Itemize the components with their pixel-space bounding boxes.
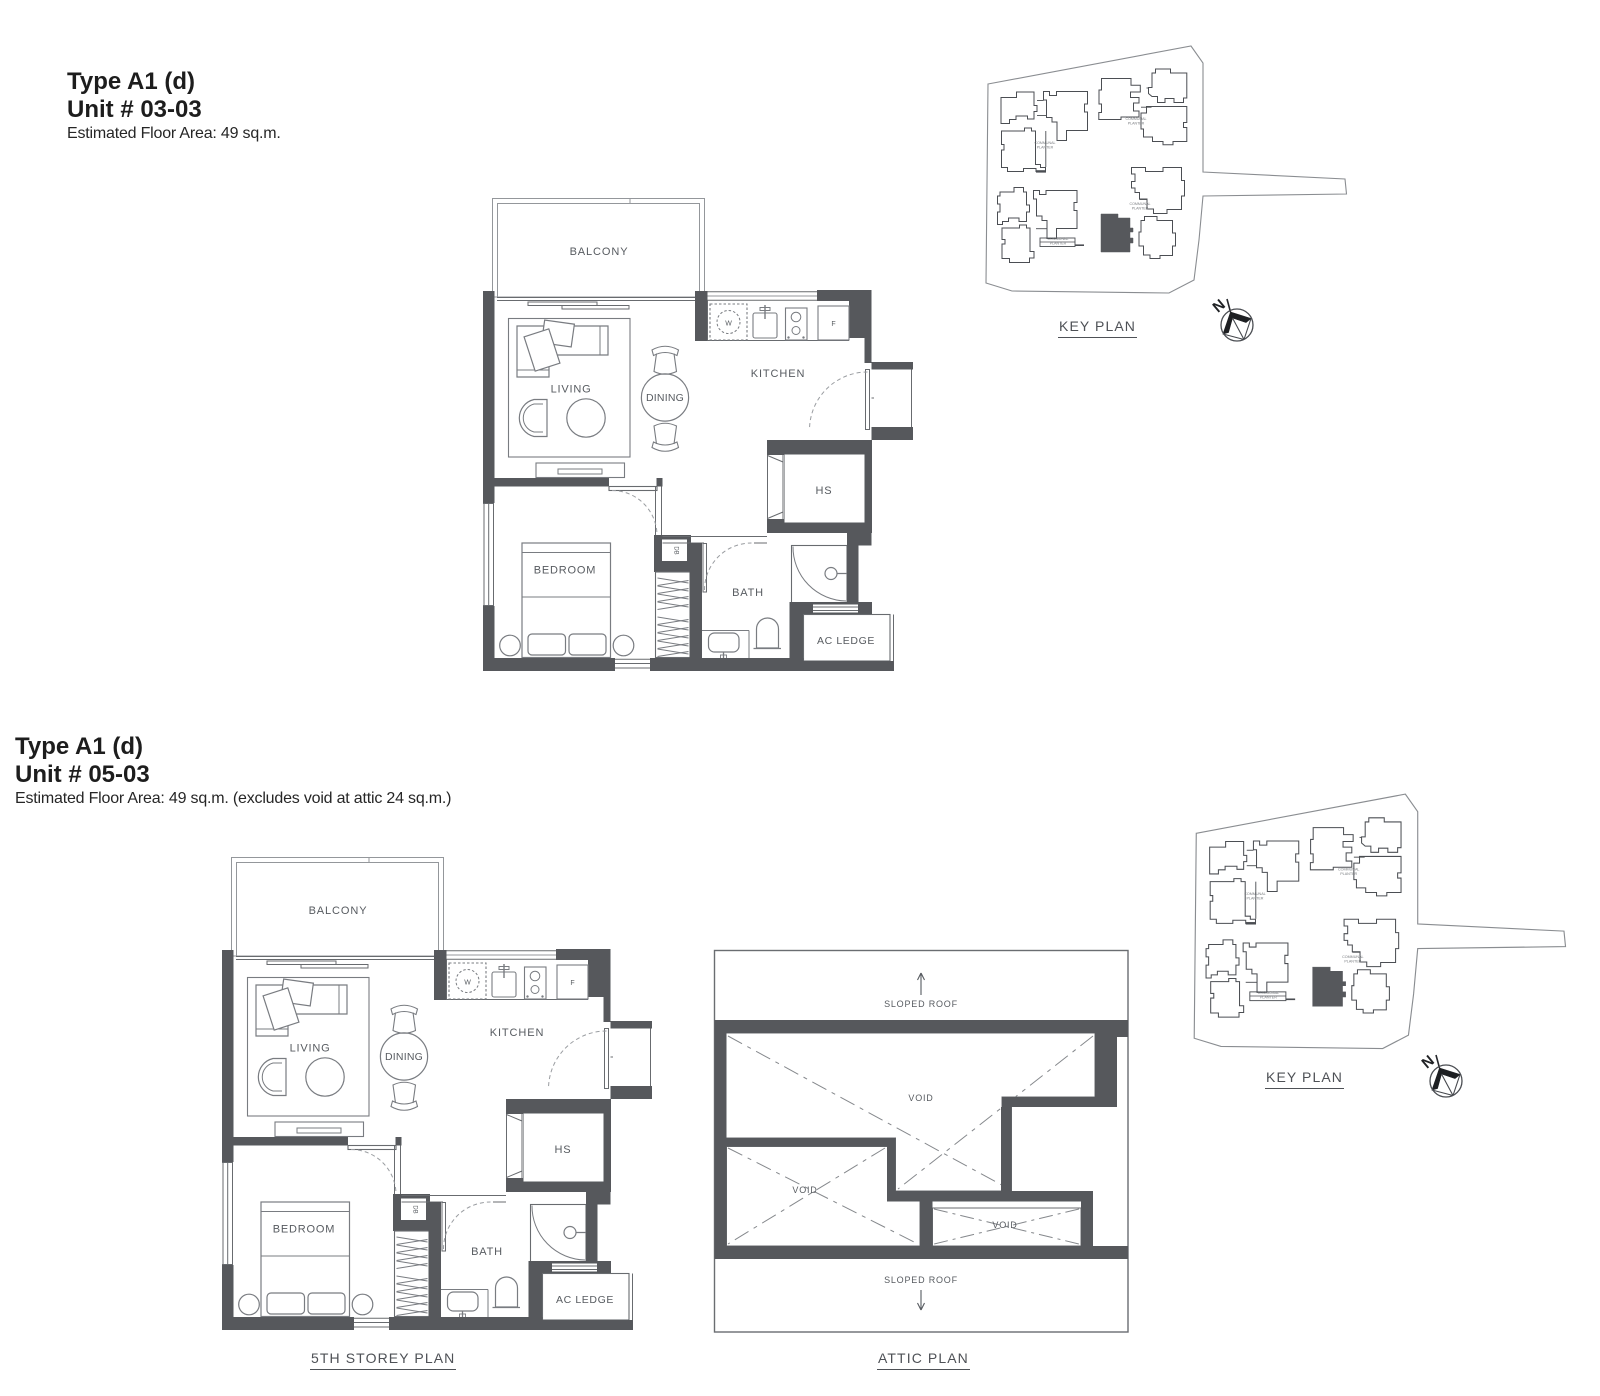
svg-text:W: W [464, 980, 471, 987]
svg-text:F: F [570, 980, 574, 987]
svg-text:VOID: VOID [908, 1093, 933, 1103]
svg-text:COMMUNAL: COMMUNAL [1126, 117, 1147, 121]
svg-text:COMMUNAL: COMMUNAL [1258, 991, 1280, 995]
svg-text:PLANTER: PLANTER [1050, 241, 1067, 245]
svg-text:COMMUNAL: COMMUNAL [1244, 892, 1266, 896]
svg-text:PLANTER: PLANTER [1344, 959, 1361, 963]
svg-text:KITCHEN: KITCHEN [751, 368, 806, 380]
svg-text:SLOPED ROOF: SLOPED ROOF [884, 1275, 958, 1285]
svg-text:HS: HS [555, 1144, 572, 1156]
svg-text:DB: DB [673, 546, 679, 554]
svg-text:BEDROOM: BEDROOM [273, 1224, 335, 1236]
svg-text:SLOPED ROOF: SLOPED ROOF [884, 999, 958, 1009]
svg-text:PLANTER: PLANTER [1128, 121, 1145, 125]
svg-text:COMMUNAL: COMMUNAL [1130, 202, 1151, 206]
svg-text:BALCONY: BALCONY [309, 905, 368, 917]
svg-text:PLANTER: PLANTER [1246, 897, 1263, 901]
svg-text:LIVING: LIVING [290, 1043, 331, 1055]
svg-text:BALCONY: BALCONY [570, 246, 629, 258]
svg-text:DINING: DINING [385, 1051, 423, 1063]
svg-text:COMMUNAL: COMMUNAL [1338, 867, 1360, 871]
svg-text:W: W [725, 321, 732, 328]
svg-text:LIVING: LIVING [551, 384, 592, 396]
svg-text:BATH: BATH [471, 1246, 503, 1258]
svg-text:PLANTER: PLANTER [1260, 995, 1277, 999]
svg-text:PLANTER: PLANTER [1132, 206, 1149, 210]
svg-text:KITCHEN: KITCHEN [490, 1027, 545, 1039]
svg-text:PLANTER: PLANTER [1340, 872, 1357, 876]
svg-text:VOID: VOID [792, 1185, 817, 1195]
svg-text:VOID: VOID [992, 1220, 1017, 1230]
svg-text:F: F [831, 321, 835, 328]
svg-text:COMMUNAL: COMMUNAL [1048, 237, 1069, 241]
svg-text:AC LEDGE: AC LEDGE [817, 635, 875, 647]
svg-text:AC LEDGE: AC LEDGE [556, 1294, 614, 1306]
svg-text:PLANTER: PLANTER [1037, 145, 1054, 149]
svg-text:DB: DB [412, 1205, 418, 1213]
svg-text:HS: HS [816, 485, 833, 497]
svg-text:DINING: DINING [646, 392, 684, 404]
svg-text:COMMUNAL: COMMUNAL [1342, 955, 1364, 959]
svg-text:BEDROOM: BEDROOM [534, 565, 596, 577]
svg-text:BATH: BATH [732, 587, 764, 599]
svg-text:COMMUNAL: COMMUNAL [1035, 141, 1056, 145]
